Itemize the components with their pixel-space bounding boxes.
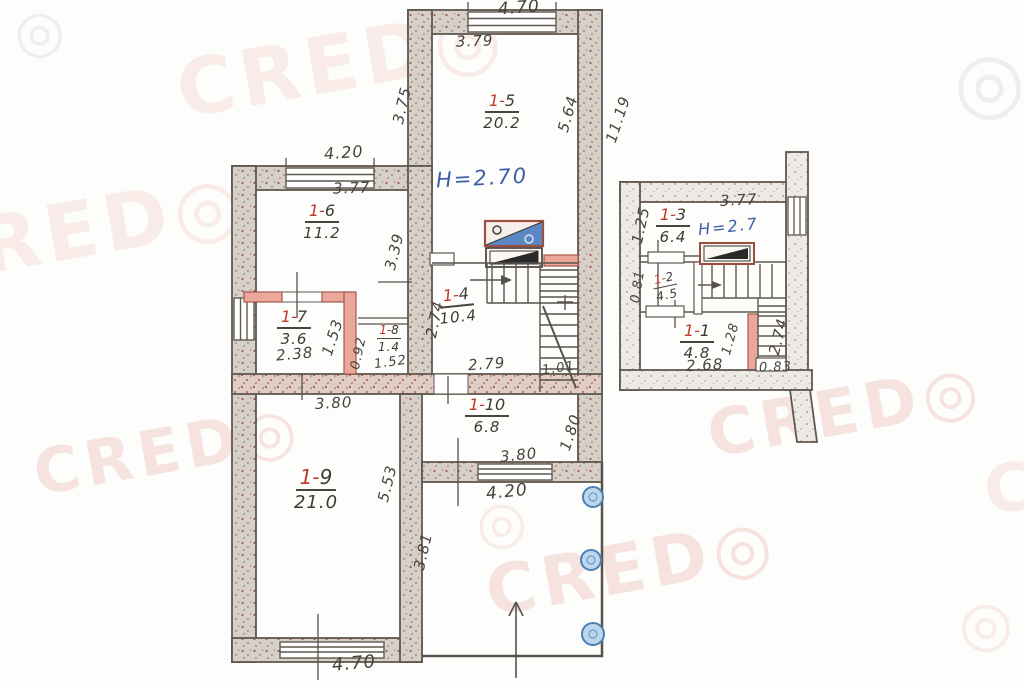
- room-label-1-9: 1-9 21.0: [284, 466, 348, 513]
- room-area: 6.8: [456, 419, 518, 436]
- dim-bottom-outer: 4.70: [331, 653, 376, 675]
- room-label-1-6: 1-6 11.2: [294, 202, 350, 241]
- dim-top-outer: 4.70: [497, 0, 540, 18]
- room-area: 3.6: [268, 331, 320, 348]
- room-number-prefix: 1-: [469, 395, 485, 414]
- room-area: 4.8: [670, 345, 724, 362]
- room-number: 1-9: [296, 466, 337, 491]
- stove-symbol-main: [485, 221, 543, 267]
- room-number-suffix: 6: [325, 201, 335, 220]
- dim-room9-top: 3.80: [315, 395, 353, 412]
- dim-wing-outer: 4.20: [323, 144, 364, 163]
- room-number-prefix: 1-: [684, 321, 700, 340]
- dim-room10-window: 3.80: [499, 446, 538, 465]
- ceiling-height-main: H=2.70: [436, 166, 529, 192]
- room-area: 20.2: [474, 115, 530, 132]
- room-number-suffix: 9: [320, 465, 333, 489]
- porch-column: [581, 550, 601, 570]
- room-number-suffix: 5: [505, 91, 515, 110]
- room-number: 1-5: [485, 92, 519, 113]
- dim-top-inner: 3.79: [456, 33, 494, 49]
- room-number-prefix: 1-: [281, 307, 297, 326]
- porch-columns: [581, 487, 604, 645]
- room-label-1-8: 1-8 1.4: [366, 320, 412, 354]
- room-number: 1-8: [377, 324, 401, 339]
- room-number-suffix: 2: [664, 269, 674, 284]
- room-area: 6.4: [648, 229, 698, 246]
- room-number: 1-3: [656, 206, 690, 227]
- room-number: 1-4: [438, 284, 474, 308]
- dim-annex-stair-width: 0.83: [759, 360, 792, 374]
- dim-porch-top: 4.20: [485, 482, 528, 503]
- room-area: 21.0: [284, 493, 348, 513]
- scanned-floor-plan-page: CRED◎ CRED◎ CRED◎ CRED◎ CRED◎ CRED◎ ◎ ◎ …: [0, 0, 1024, 683]
- room-number-prefix: 1-: [489, 91, 505, 110]
- room-number-suffix: 7: [297, 307, 307, 326]
- room-label-1-7: 1-7 3.6: [268, 308, 320, 347]
- porch-column: [582, 623, 604, 645]
- room-area: 1.4: [366, 341, 412, 354]
- dim-annex-top: 3.77: [720, 192, 758, 209]
- room-number-prefix: 1-: [379, 323, 391, 337]
- room-label-1-4: 1-4 10.4: [428, 283, 486, 328]
- room-number-suffix: 3: [676, 205, 686, 224]
- room-number-suffix: 10: [485, 395, 505, 414]
- room-area: 11.2: [294, 225, 350, 242]
- room-number: 1-10: [465, 396, 509, 417]
- room-number-prefix: 1-: [300, 465, 320, 489]
- room-number-prefix: 1-: [660, 205, 676, 224]
- room-label-1-1: 1-1 4.8: [670, 322, 724, 361]
- dim-room7-width: 2.38: [275, 345, 314, 363]
- room-number-prefix: 1-: [442, 285, 460, 306]
- dim-room4-width: 2.79: [468, 356, 506, 374]
- room-number-suffix: 1: [700, 321, 710, 340]
- room-label-1-3: 1-3 6.4: [648, 206, 698, 245]
- room-number-suffix: 8: [391, 323, 399, 337]
- dim-wing-inner: 3.77: [333, 180, 371, 196]
- annex-window: [788, 197, 806, 235]
- room-label-1-10: 1-10 6.8: [456, 396, 518, 435]
- stove-symbol-annex: [700, 243, 754, 264]
- room-label-1-5: 1-5 20.2: [474, 92, 530, 131]
- room-number-suffix: 4: [458, 284, 470, 304]
- room-number: 1-1: [680, 322, 714, 343]
- room-number: 1-6: [305, 202, 339, 223]
- room-number: 1-7: [277, 308, 311, 329]
- room-number-prefix: 1-: [309, 201, 325, 220]
- porch-column: [583, 487, 603, 507]
